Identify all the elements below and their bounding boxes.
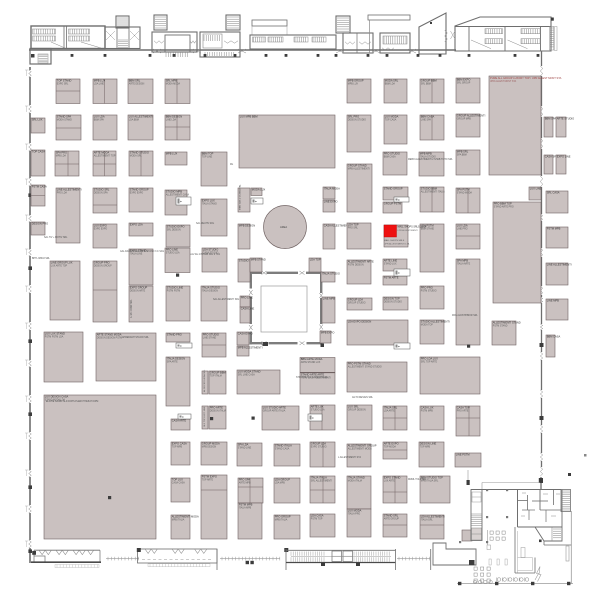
svg-text:DESIGN PRO: DESIGN PRO — [32, 222, 48, 226]
svg-text:GROUP MODA: GROUP MODA — [202, 442, 220, 446]
svg-text:LDA TOP: LDA TOP — [310, 258, 321, 262]
svg-text:EXPO LDA: EXPO LDA — [130, 223, 143, 227]
svg-text:ALLESTIMENTI TOP: ALLESTIMENTI TOP — [94, 155, 116, 158]
svg-text:BBM DESIGN: BBM DESIGN — [166, 115, 182, 119]
svg-text:GAL DAB 2 GALLASO STETANO 3 C: GAL DAB 2 GALLASO STETANO 3 C SAS — [120, 250, 164, 253]
svg-text:LUX LDA: LUX LDA — [457, 224, 468, 228]
svg-text:EXPO STAND: EXPO STAND — [384, 476, 401, 480]
svg-text:UPR ALLEST MONT STA: UPR ALLEST MONT STA — [490, 80, 517, 83]
svg-text:ELICHE SAUBL SLD DOPS PLERI PH: ELICHE SAUBL SLD DOPS PLERI PHILBATI DPM — [46, 400, 98, 403]
svg-text:ITALIA MPB: ITALIA MPB — [239, 507, 252, 510]
svg-text:ITALIA PRO: ITALIA PRO — [348, 513, 361, 516]
svg-text:STUDIO ALLESTIMENTI: STUDIO ALLESTIMENTI — [421, 320, 450, 324]
svg-text:TOP STAND: TOP STAND — [57, 79, 72, 83]
svg-text:BBM TOP: BBM TOP — [202, 152, 214, 156]
svg-text:GROUP LDA: GROUP LDA — [348, 298, 364, 302]
svg-text:PSTM STUDIO: PSTM STUDIO — [421, 291, 437, 293]
svg-text:DESIGN ITALIA: DESIGN ITALIA — [210, 410, 227, 413]
svg-text:DMML TOLS SRL: DMML TOLS SRL — [408, 479, 427, 481]
svg-text:LINE EXPO: LINE EXPO — [324, 200, 338, 204]
svg-text:SRL PRO: SRL PRO — [348, 115, 359, 119]
svg-text:MODA SRL: MODA SRL — [130, 155, 143, 158]
svg-text:DESIGN LINE: DESIGN LINE — [420, 442, 437, 446]
svg-text:MALL SHOPS SRLS 23/14: MALL SHOPS SRLS 23/14 — [398, 226, 427, 229]
svg-text:SPA LDA: SPA LDA — [238, 443, 249, 447]
svg-text:GROUP BBM: GROUP BBM — [421, 79, 437, 83]
svg-text:CASA LUX: CASA LUX — [421, 406, 434, 410]
svg-text:GROUP BBM: GROUP BBM — [210, 371, 226, 375]
svg-text:LUX MODA: LUX MODA — [385, 115, 399, 119]
svg-text:ARTE DESIGN: ARTE DESIGN — [129, 83, 145, 86]
svg-text:STAND ARTE ARTE: STAND ARTE ARTE — [301, 372, 325, 376]
svg-text:CASA ALLESTIMENTI: CASA ALLESTIMENTI — [324, 224, 350, 228]
svg-text:DESIGN GROUP: DESIGN GROUP — [94, 266, 112, 268]
svg-text:PRO GROUP: PRO GROUP — [275, 515, 291, 519]
svg-text:GROUP PRO: GROUP PRO — [94, 261, 110, 265]
svg-text:SAL REATIV SRL: SAL REATIV SRL — [196, 222, 215, 225]
svg-text:GROUP STAND: GROUP STAND — [348, 164, 367, 168]
svg-text:MPB ITALIA: MPB ITALIA — [275, 519, 288, 522]
svg-text:LINE PSTM: LINE PSTM — [456, 453, 470, 457]
svg-text:APREDAMT STLDIO SRL: APREDAMT STLDIO SRL — [122, 336, 149, 339]
svg-text:SPA MPB: SPA MPB — [457, 259, 468, 263]
svg-text:LUX LDA: LUX LDA — [94, 115, 105, 119]
svg-text:LUX STUDIO ARTE: LUX STUDIO ARTE — [263, 406, 286, 410]
svg-text:LAL WL.GTPIMIB SRL 2 TLN: LAL WL.GTPIMIB SRL 2 TLN — [190, 253, 220, 256]
svg-text:UPR ALLESTIMENTI 17A: UPR ALLESTIMENTI 17A — [384, 243, 410, 246]
svg-text:ARTE STUDIO: ARTE STUDIO — [557, 117, 574, 121]
svg-text:AGTN DESIGN SRL: AGTN DESIGN SRL — [352, 396, 374, 399]
svg-text:PSTM MPB: PSTM MPB — [239, 503, 253, 507]
svg-text:PURE ALL GROUP LUXORY TOP / UP: PURE ALL GROUP LUXORY TOP / UPR ALLEST M… — [490, 76, 562, 80]
svg-text:MPB STAND: MPB STAND — [251, 258, 266, 262]
svg-text:LDA TOP: LDA TOP — [348, 223, 359, 227]
svg-text:GROUP MPB: GROUP MPB — [457, 119, 471, 121]
svg-text:ITALIA SRL: ITALIA SRL — [384, 406, 398, 410]
svg-text:MPB ALLESTIMENTI: MPB ALLESTIMENTI — [238, 346, 263, 350]
svg-text:SRL ALLESTIMENTI: SRL ALLESTIMENTI — [311, 480, 333, 483]
svg-text:LINE STAND: LINE STAND — [203, 337, 217, 340]
svg-text:SRL GROUP: SRL GROUP — [457, 83, 471, 85]
svg-text:PRO LINE: PRO LINE — [166, 248, 178, 252]
svg-text:STAND ARTE PRO: STAND ARTE PRO — [494, 206, 514, 209]
svg-text:A. MI. COMP SRL: A. MI. COMP SRL — [130, 299, 133, 318]
svg-text:TOP LINE: TOP LINE — [202, 157, 213, 159]
svg-text:AREA: AREA — [280, 225, 287, 229]
svg-text:MODA STAND: MODA STAND — [57, 119, 72, 122]
svg-text:BBM LDA: BBM LDA — [385, 83, 396, 86]
svg-text:TOP ITALIA: TOP ITALIA — [210, 375, 223, 378]
svg-text:MPB EXPO: MPB EXPO — [321, 331, 335, 335]
svg-text:GROUP STUDIO: GROUP STUDIO — [348, 303, 366, 305]
svg-text:MPB MPB: MPB MPB — [420, 152, 432, 156]
svg-text:ARTE LINE: ARTE LINE — [384, 259, 398, 263]
svg-text:DESIGN ARTE: DESIGN ARTE — [130, 290, 146, 293]
svg-text:LDA STUDIO: LDA STUDIO — [203, 248, 218, 252]
svg-text:STAND PRO: STAND PRO — [167, 333, 182, 337]
svg-text:ARTE MPB: ARTE MPB — [239, 482, 251, 485]
svg-text:MODA LUX: MODA LUX — [252, 188, 266, 192]
svg-text:GROUP DESIGN: GROUP DESIGN — [348, 410, 366, 412]
svg-text:MPB LDA: MPB LDA — [56, 155, 67, 158]
svg-text:ITALIA STAND: ITALIA STAND — [348, 476, 365, 480]
svg-text:PRO ARTE: PRO ARTE — [210, 406, 223, 410]
svg-text:STAND STUDIO: STAND STUDIO — [130, 151, 149, 155]
svg-text:TOP MODA: TOP MODA — [384, 446, 397, 449]
svg-text:PSTM DESIGN: PSTM DESIGN — [348, 265, 364, 267]
svg-text:MALL SHOPS SRLS: MALL SHOPS SRLS — [384, 239, 405, 242]
svg-text:TOP CASA: TOP CASA — [32, 150, 45, 154]
svg-text:ITALIA ITALIA: ITALIA ITALIA — [311, 476, 327, 480]
svg-text:LDA ARTE: LDA ARTE — [384, 410, 395, 413]
svg-text:PRO SPA: PRO SPA — [239, 478, 251, 482]
svg-text:BBM SPA: BBM SPA — [545, 117, 557, 121]
svg-text:ALLESTIMENTI STAND STUDIO: ALLESTIMENTI STAND STUDIO — [348, 366, 382, 369]
svg-text:LUX MODA STAND: LUX MODA STAND — [238, 370, 261, 374]
svg-text:PRO STUDIO: PRO STUDIO — [203, 333, 219, 337]
svg-text:ITALIA STAND: ITALIA STAND — [202, 203, 217, 206]
svg-text:MPB DESIGN: MPB DESIGN — [239, 224, 255, 228]
svg-text:TOP MPB: TOP MPB — [420, 447, 431, 449]
svg-text:EXPO LINE: EXPO LINE — [557, 155, 571, 159]
svg-text:SPA PSTM: SPA PSTM — [457, 188, 470, 192]
svg-text:SAL TIV + MOTIV SRL: SAL TIV + MOTIV SRL — [44, 236, 68, 239]
svg-text:ALLESTIMENTI MODA: ALLESTIMENTI MODA — [172, 515, 199, 519]
svg-text:EXPO GROUP: EXPO GROUP — [130, 286, 148, 290]
svg-text:MODA MODA: MODA MODA — [166, 83, 181, 86]
svg-text:EXPO STUDIO: EXPO STUDIO — [311, 447, 327, 449]
svg-text:STAND GROUP: STAND GROUP — [130, 188, 149, 192]
svg-text:ALLESTIMENTI STAND: ALLESTIMENTI STAND — [493, 321, 521, 325]
svg-text:LINE SPA: LINE SPA — [421, 119, 432, 122]
svg-text:BBM CASA: BBM CASA — [547, 335, 561, 339]
svg-text:BBM CASA: BBM CASA — [421, 115, 435, 119]
svg-text:STAND SPA: STAND SPA — [57, 115, 72, 119]
svg-text:PSTM MPB: PSTM MPB — [421, 411, 433, 413]
svg-text:CASA CASA: CASA CASA — [172, 482, 185, 485]
svg-text:PRO LINE: PRO LINE — [241, 296, 253, 300]
svg-text:MPB LUX: MPB LUX — [94, 79, 106, 83]
svg-text:LDA MPB: LDA MPB — [275, 482, 285, 485]
svg-text:PSTM STAND: PSTM STAND — [493, 325, 508, 328]
svg-text:CASA EXPO: CASA EXPO — [238, 332, 253, 336]
svg-text:MODA TOP: MODA TOP — [421, 324, 434, 327]
svg-text:TOP CASA: TOP CASA — [385, 119, 397, 122]
svg-text:ARTE LUX: ARTE LUX — [311, 405, 324, 409]
svg-text:PSTM MPB: PSTM MPB — [547, 227, 561, 231]
svg-text:LDA GROUP: LDA GROUP — [275, 478, 290, 482]
svg-text:MPB SRL: MPB SRL — [457, 150, 469, 154]
svg-text:DESIGN STUDIO: DESIGN STUDIO — [384, 302, 402, 304]
svg-text:STUDIO LDA: STUDIO LDA — [166, 252, 180, 255]
svg-text:STAND LINE: STAND LINE — [238, 447, 252, 450]
svg-text:LDA CASA: LDA CASA — [311, 514, 324, 518]
svg-text:BBM SPA: BBM SPA — [94, 119, 105, 122]
svg-text:L ALLESTIMENTI STA: L ALLESTIMENTI STA — [338, 456, 361, 459]
svg-text:AL SD PRO MODA SRL: AL SD PRO MODA SRL — [203, 369, 206, 392]
svg-text:CASA LINE: CASA LINE — [241, 307, 255, 311]
svg-text:EXPO EXPO: EXPO EXPO — [94, 229, 108, 231]
svg-text:STAND LUX: STAND LUX — [384, 263, 397, 266]
svg-text:ITALIA ARTE: ITALIA ARTE — [457, 263, 471, 266]
svg-text:LDA LINE: LDA LINE — [94, 83, 105, 86]
svg-text:BBM SRL: BBM SRL — [129, 79, 141, 83]
svg-text:LDA EXPO DESIGN: LDA EXPO DESIGN — [348, 320, 372, 324]
svg-text:LUX ALLESTIMENTI: LUX ALLESTIMENTI — [129, 115, 153, 119]
svg-text:PSTM CASA: PSTM CASA — [32, 185, 47, 189]
svg-text:STUDIO BBM: STUDIO BBM — [421, 187, 437, 191]
svg-text:STAND SRL: STAND SRL — [384, 514, 399, 518]
svg-text:MPB ALLESTIMENTI: MPB ALLESTIMENTI — [348, 168, 370, 171]
svg-text:SPA BBM: SPA BBM — [457, 154, 467, 157]
svg-text:PRO PRO: PRO PRO — [421, 286, 433, 290]
svg-text:LINE MPB: LINE MPB — [547, 299, 559, 303]
svg-text:SRL TOP ARTE: SRL TOP ARTE — [421, 361, 438, 364]
svg-text:EXPO EXPO: EXPO EXPO — [130, 193, 144, 195]
svg-text:LUX EXPO: LUX EXPO — [94, 224, 107, 228]
svg-text:EXPO LUX: EXPO LUX — [202, 199, 215, 203]
svg-text:PRO BBM TOP: PRO BBM TOP — [494, 202, 512, 206]
svg-text:PRO LDA LUX: PRO LDA LUX — [421, 357, 438, 361]
svg-text:LUX LINE: LUX LINE — [530, 187, 542, 191]
svg-text:ITALIA SRL: ITALIA SRL — [421, 519, 434, 522]
svg-text:MPB LUX: MPB LUX — [166, 152, 178, 156]
svg-text:MBM GAS 2 CUSMA ITAL: MBM GAS 2 CUSMA ITAL — [239, 184, 242, 210]
svg-text:SAL ALLESTIMENTI SRL: SAL ALLESTIMENTI SRL — [213, 298, 240, 301]
svg-text:MEBO ALLESTIMENTI 2 SHAB TCHO: MEBO ALLESTIMENTI 2 SHAB TCHO SRL — [408, 158, 453, 161]
svg-text:ALLESTIMENTI ITALIA: ALLESTIMENTI ITALIA — [421, 191, 445, 194]
svg-text:PSTM TOP: PSTM TOP — [311, 519, 323, 521]
svg-text:ITALIA DESIGN: ITALIA DESIGN — [202, 290, 219, 293]
svg-text:LUX SRL: LUX SRL — [348, 405, 359, 409]
svg-text:STM TOS TLC S STEFANO AL: STM TOS TLC S STEFANO AL — [296, 376, 329, 379]
svg-text:DESIGN STUDIO: DESIGN STUDIO — [348, 120, 366, 122]
svg-text:MPB DESIGN: MPB DESIGN — [202, 447, 217, 449]
svg-text:ALLESTIMENTI ARTE: ALLESTIMENTI ARTE — [348, 260, 374, 264]
svg-text:ARTE GROUP: ARTE GROUP — [384, 518, 400, 521]
svg-text:LDA ALLESTIMENTI: LDA ALLESTIMENTI — [421, 515, 445, 519]
svg-text:STAND GROUP: STAND GROUP — [384, 187, 403, 191]
svg-text:LINE ALLESTIMENTI: LINE ALLESTIMENTI — [547, 263, 572, 267]
svg-text:PRO STUDIO: PRO STUDIO — [384, 152, 400, 156]
svg-text:SRL DESIGN: SRL DESIGN — [167, 230, 181, 232]
svg-text:EXPO SRL: EXPO SRL — [57, 84, 69, 86]
svg-text:ARTE STAND MODA: ARTE STAND MODA — [97, 333, 122, 337]
svg-text:SRL LUX: SRL LUX — [32, 118, 43, 122]
svg-text:PRO SRL: PRO SRL — [348, 228, 359, 230]
svg-text:GROUP LDA: GROUP LDA — [311, 442, 327, 446]
svg-text:PSTM PSTM LDA: PSTM PSTM LDA — [45, 336, 64, 339]
svg-text:TOP ARTE: TOP ARTE — [202, 479, 214, 482]
svg-text:DESIGN TOP: DESIGN TOP — [384, 297, 400, 301]
svg-text:LINE ALLESTIMENTI: LINE ALLESTIMENTI — [57, 188, 82, 192]
svg-text:LUX LUX STAND: LUX LUX STAND — [45, 332, 65, 336]
svg-text:PSTM PSTM: PSTM PSTM — [167, 291, 180, 293]
svg-text:ALLESTIMENTI GROUP: ALLESTIMENTI GROUP — [348, 444, 377, 448]
svg-text:EXPO CASA: EXPO CASA — [172, 442, 187, 446]
svg-text:STUDIO EXPO: STUDIO EXPO — [167, 225, 185, 229]
svg-text:SPA PRO: SPA PRO — [56, 151, 67, 155]
svg-text:STUDIO LINE: STUDIO LINE — [167, 286, 184, 290]
svg-text:STUDIO SRL: STUDIO SRL — [94, 188, 110, 192]
svg-text:STAND ITALIA: STAND ITALIA — [275, 444, 292, 448]
svg-text:ARTE MODA: ARTE MODA — [94, 151, 110, 155]
svg-text:ITALIA STUDIO: ITALIA STUDIO — [202, 286, 220, 290]
svg-text:MPB ITALIA: MPB ITALIA — [172, 519, 185, 522]
svg-text:ITALIA MODA: ITALIA MODA — [324, 187, 340, 191]
svg-text:STUDIO LDA: STUDIO LDA — [311, 409, 325, 412]
svg-text:MODA ITALIA: MODA ITALIA — [348, 480, 363, 483]
svg-text:LUX DESIGN CASA: LUX DESIGN CASA — [45, 395, 69, 399]
svg-text:LPR ALLESTIMENTI: LPR ALLESTIMENTI — [398, 229, 419, 232]
svg-text:SPA ARTE: SPA ARTE — [167, 361, 178, 364]
svg-text:SRL MPB: SRL MPB — [166, 79, 178, 83]
svg-text:STAND MODA: STAND MODA — [457, 192, 473, 195]
svg-text:ALLESTIMENTI MODA: ALLESTIMENTI MODA — [348, 448, 372, 451]
svg-text:BPTL 98343 SRL: BPTL 98343 SRL — [32, 258, 51, 260]
svg-text:MOL ALDSTPIBIOR SRL: MOL ALDSTPIBIOR SRL — [452, 314, 478, 317]
svg-text:PRO ARTE: PRO ARTE — [457, 410, 469, 413]
svg-text:ARTE STAND LUX: ARTE STAND LUX — [301, 361, 321, 364]
svg-text:GLS TOP EXPO LINE: GLS TOP EXPO LINE — [204, 406, 206, 427]
svg-text:MPB GROUP: MPB GROUP — [348, 79, 364, 83]
svg-text:ALLESTIMENTI CASA: ALLESTIMENTI CASA — [166, 194, 190, 197]
svg-text:PRO PSTM STAND: PRO PSTM STAND — [348, 362, 371, 366]
svg-text:MPB LUX: MPB LUX — [348, 84, 359, 86]
svg-text:GROUP ARTE ITALIA: GROUP ARTE ITALIA — [263, 410, 286, 413]
svg-text:LUX MODA: LUX MODA — [348, 509, 362, 513]
svg-text:MODA SRL: MODA SRL — [385, 79, 399, 83]
svg-text:SRL BBM: SRL BBM — [421, 84, 431, 86]
svg-text:ITALIA DESIGN: ITALIA DESIGN — [167, 357, 185, 361]
svg-text:LINE MPB: LINE MPB — [323, 297, 335, 301]
svg-text:STUDIO MPB: STUDIO MPB — [166, 190, 182, 194]
svg-text:SRL CASA: SRL CASA — [547, 191, 560, 195]
svg-text:CASA TOP: CASA TOP — [457, 406, 470, 410]
svg-text:BBM CASA: BBM CASA — [384, 156, 396, 159]
svg-text:LUX ARTE: LUX ARTE — [384, 480, 396, 483]
svg-text:DESIGN SPA: DESIGN SPA — [94, 192, 108, 195]
svg-text:ITALIA LINE: ITALIA LINE — [130, 253, 143, 256]
svg-text:DESIGN DESIGN PSTM: DESIGN DESIGN PSTM — [97, 338, 122, 340]
svg-text:ITALIA STUDIO: ITALIA STUDIO — [322, 272, 340, 276]
svg-text:ARTE EXPO: ARTE EXPO — [384, 442, 399, 446]
svg-text:LINE GROUP LUX: LINE GROUP LUX — [51, 261, 73, 265]
svg-text:TOP MPB: TOP MPB — [172, 447, 183, 449]
svg-text:LINE PRO: LINE PRO — [457, 229, 468, 231]
svg-text:PRO LDA: PRO LDA — [57, 192, 68, 195]
svg-text:STAND CASA: STAND CASA — [275, 448, 290, 451]
svg-text:BBM EXPO: BBM EXPO — [457, 78, 471, 82]
svg-text:LINE LDA: LINE LDA — [166, 119, 177, 122]
svg-text:GROUP ALLESTIMENTI: GROUP ALLESTIMENTI — [457, 114, 486, 118]
svg-text:LUX MPB BBM: LUX MPB BBM — [240, 115, 258, 119]
svg-text:BBM ARTE MODA: BBM ARTE MODA — [301, 357, 323, 361]
svg-text:LUX ARTE TOP: LUX ARTE TOP — [51, 265, 68, 268]
svg-text:LDA BBM: LDA BBM — [129, 119, 139, 122]
svg-text:PSTM EXPO: PSTM EXPO — [202, 475, 217, 479]
svg-text:TOP LUX: TOP LUX — [172, 478, 183, 482]
svg-text:SRL LINE CASA: SRL LINE CASA — [238, 374, 255, 377]
